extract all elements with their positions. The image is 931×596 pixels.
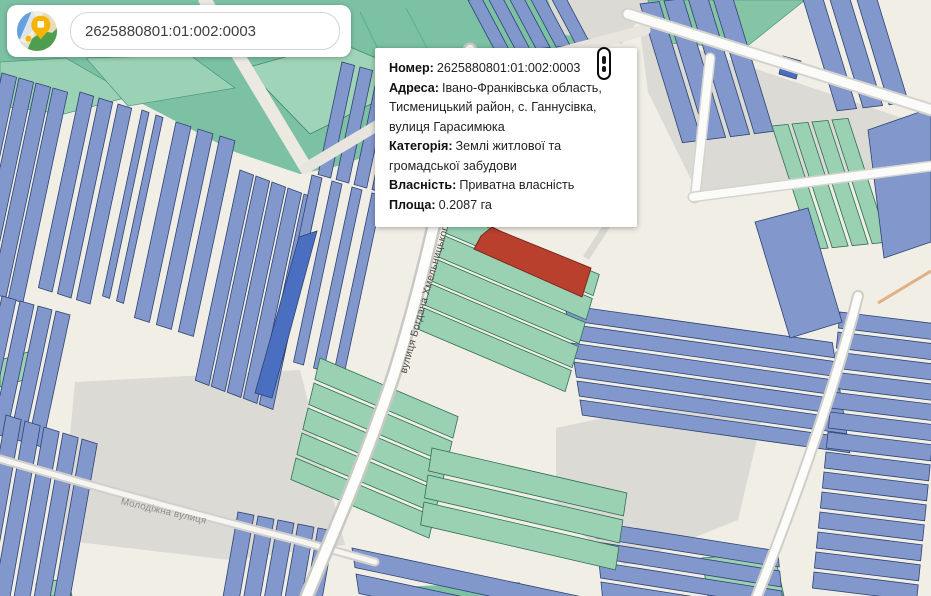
popup-row-ownership: Власність:Приватна власність: [389, 176, 623, 196]
popup-label: Адреса:: [389, 81, 439, 95]
popup-row-address: Адреса:Івано-Франківська область, Тисмен…: [389, 79, 623, 138]
popup-row-area: Площа:0.2087 га: [389, 196, 623, 216]
popup-label: Власність:: [389, 178, 456, 192]
popup-value: 0.2087 га: [439, 198, 492, 212]
app-logo-icon[interactable]: [16, 10, 58, 52]
zoom-handle-dot: [602, 56, 606, 64]
popup-label: Категорія:: [389, 139, 453, 153]
map-app: вулиця Богдана ХмельницькогоМолодіжна ву…: [0, 0, 931, 596]
popup-row-number: Номер:2625880801:01:002:0003: [389, 59, 623, 79]
search-input[interactable]: [70, 12, 340, 50]
logo-pin-dot: [25, 36, 31, 42]
popup-label: Номер:: [389, 61, 434, 75]
logo-pin-hole: [37, 21, 44, 28]
popup-value: 2625880801:01:002:0003: [437, 61, 581, 75]
zoom-handle-dot: [602, 66, 606, 72]
popup-row-category: Категорія:Землі житлової та громадської …: [389, 137, 623, 176]
popup-value: Приватна власність: [459, 178, 574, 192]
search-card: [7, 5, 351, 57]
popup-label: Площа:: [389, 198, 436, 212]
map-zoom-control[interactable]: [597, 47, 611, 80]
